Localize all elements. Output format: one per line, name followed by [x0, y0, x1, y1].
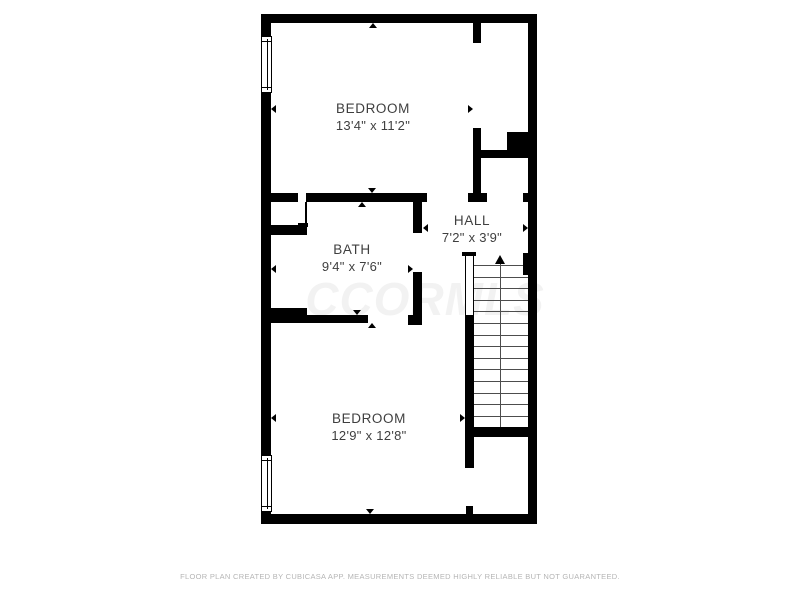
- measurement-tick: [366, 509, 374, 514]
- room-dimensions: 12'9" x 12'8": [331, 428, 406, 443]
- wall: [473, 128, 481, 193]
- wall: [261, 512, 271, 524]
- wall: [481, 150, 537, 158]
- room-label-hall: HALL 7'2" x 3'9": [442, 213, 502, 245]
- measurement-tick: [271, 414, 276, 422]
- wall: [413, 272, 422, 318]
- floor-plan: CCORMLS: [0, 0, 800, 600]
- room-label-bedroom-top: BEDROOM 13'4" x 11'2": [336, 101, 410, 133]
- window-symbol: [261, 455, 272, 512]
- measurement-tick: [358, 202, 366, 207]
- measurement-tick: [353, 310, 361, 315]
- wall: [468, 427, 537, 437]
- wall: [413, 202, 422, 233]
- wall: [261, 14, 537, 23]
- measurement-tick: [271, 105, 276, 113]
- measurement-tick: [523, 224, 528, 232]
- room-name: BEDROOM: [336, 101, 410, 116]
- wall: [271, 315, 368, 323]
- wall: [261, 14, 271, 36]
- room-dimensions: 13'4" x 11'2": [336, 118, 410, 133]
- measurement-tick: [368, 323, 376, 328]
- wall: [466, 506, 473, 514]
- wall: [261, 193, 298, 202]
- wall: [306, 193, 427, 202]
- wall: [468, 193, 487, 202]
- measurement-tick: [369, 23, 377, 28]
- shaft-box: [507, 132, 537, 150]
- measurement-tick: [271, 265, 276, 273]
- disclaimer-text: FLOOR PLAN CREATED BY CUBICASA APP. MEAS…: [0, 572, 800, 581]
- room-label-bath: BATH 9'4" x 7'6": [322, 242, 382, 274]
- room-label-bedroom-bottom: BEDROOM 12'9" x 12'8": [331, 411, 406, 443]
- room-name: HALL: [442, 213, 502, 228]
- measurement-tick: [368, 188, 376, 193]
- room-dimensions: 9'4" x 7'6": [322, 259, 382, 274]
- wall: [473, 23, 481, 43]
- wall: [523, 193, 537, 202]
- room-dimensions: 7'2" x 3'9": [442, 230, 502, 245]
- wall: [261, 514, 537, 524]
- window-symbol: [261, 36, 272, 93]
- wall: [271, 225, 307, 235]
- measurement-tick: [468, 105, 473, 113]
- wall: [261, 93, 271, 455]
- measurement-tick: [460, 414, 465, 422]
- room-name: BATH: [322, 242, 382, 257]
- wall: [465, 315, 474, 468]
- measurement-tick: [408, 265, 413, 273]
- measurement-tick: [423, 224, 428, 232]
- stair-railing: [465, 253, 474, 317]
- wall: [523, 253, 537, 275]
- room-name: BEDROOM: [331, 411, 406, 426]
- stair-centerline: [500, 257, 501, 427]
- stair-railing-cap: [462, 252, 476, 256]
- stair-direction-up-arrow-icon: [495, 255, 505, 264]
